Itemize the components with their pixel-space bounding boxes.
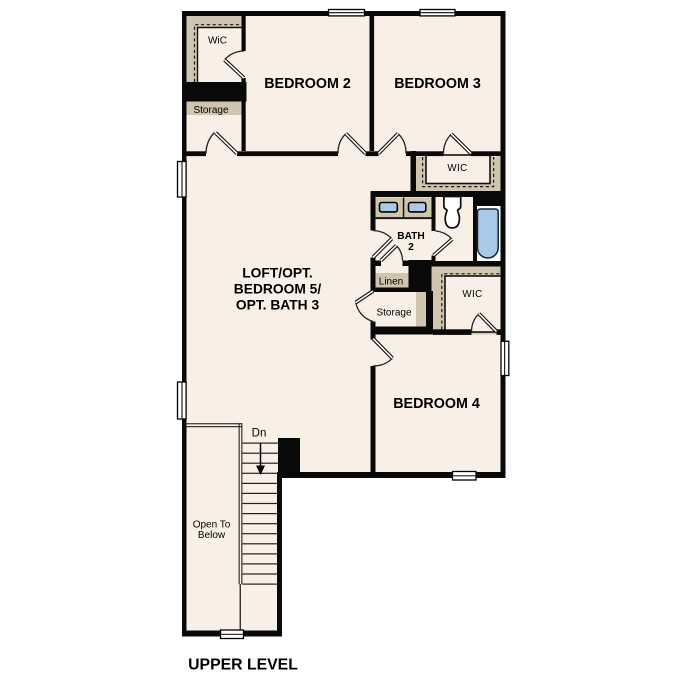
svg-text:LOFT/OPT.: LOFT/OPT. — [242, 266, 313, 281]
svg-text:BEDROOM 3: BEDROOM 3 — [394, 76, 481, 92]
svg-text:OPT. BATH 3: OPT. BATH 3 — [236, 298, 320, 313]
svg-text:BATH: BATH — [397, 231, 425, 242]
svg-text:Open To: Open To — [193, 520, 231, 531]
svg-text:Below: Below — [198, 530, 226, 541]
svg-text:2: 2 — [408, 242, 414, 253]
svg-text:BEDROOM 2: BEDROOM 2 — [264, 76, 351, 92]
svg-text:WIC: WIC — [462, 289, 482, 300]
svg-text:Dn: Dn — [252, 428, 267, 440]
svg-text:Linen: Linen — [379, 277, 403, 288]
svg-text:BEDROOM 5/: BEDROOM 5/ — [234, 282, 322, 297]
svg-text:WiC: WiC — [208, 35, 227, 46]
svg-text:Storage: Storage — [376, 308, 411, 319]
svg-text:UPPER LEVEL: UPPER LEVEL — [188, 657, 298, 674]
svg-text:Storage: Storage — [193, 105, 228, 116]
svg-text:WIC: WIC — [447, 163, 467, 174]
svg-text:BEDROOM 4: BEDROOM 4 — [393, 396, 480, 412]
